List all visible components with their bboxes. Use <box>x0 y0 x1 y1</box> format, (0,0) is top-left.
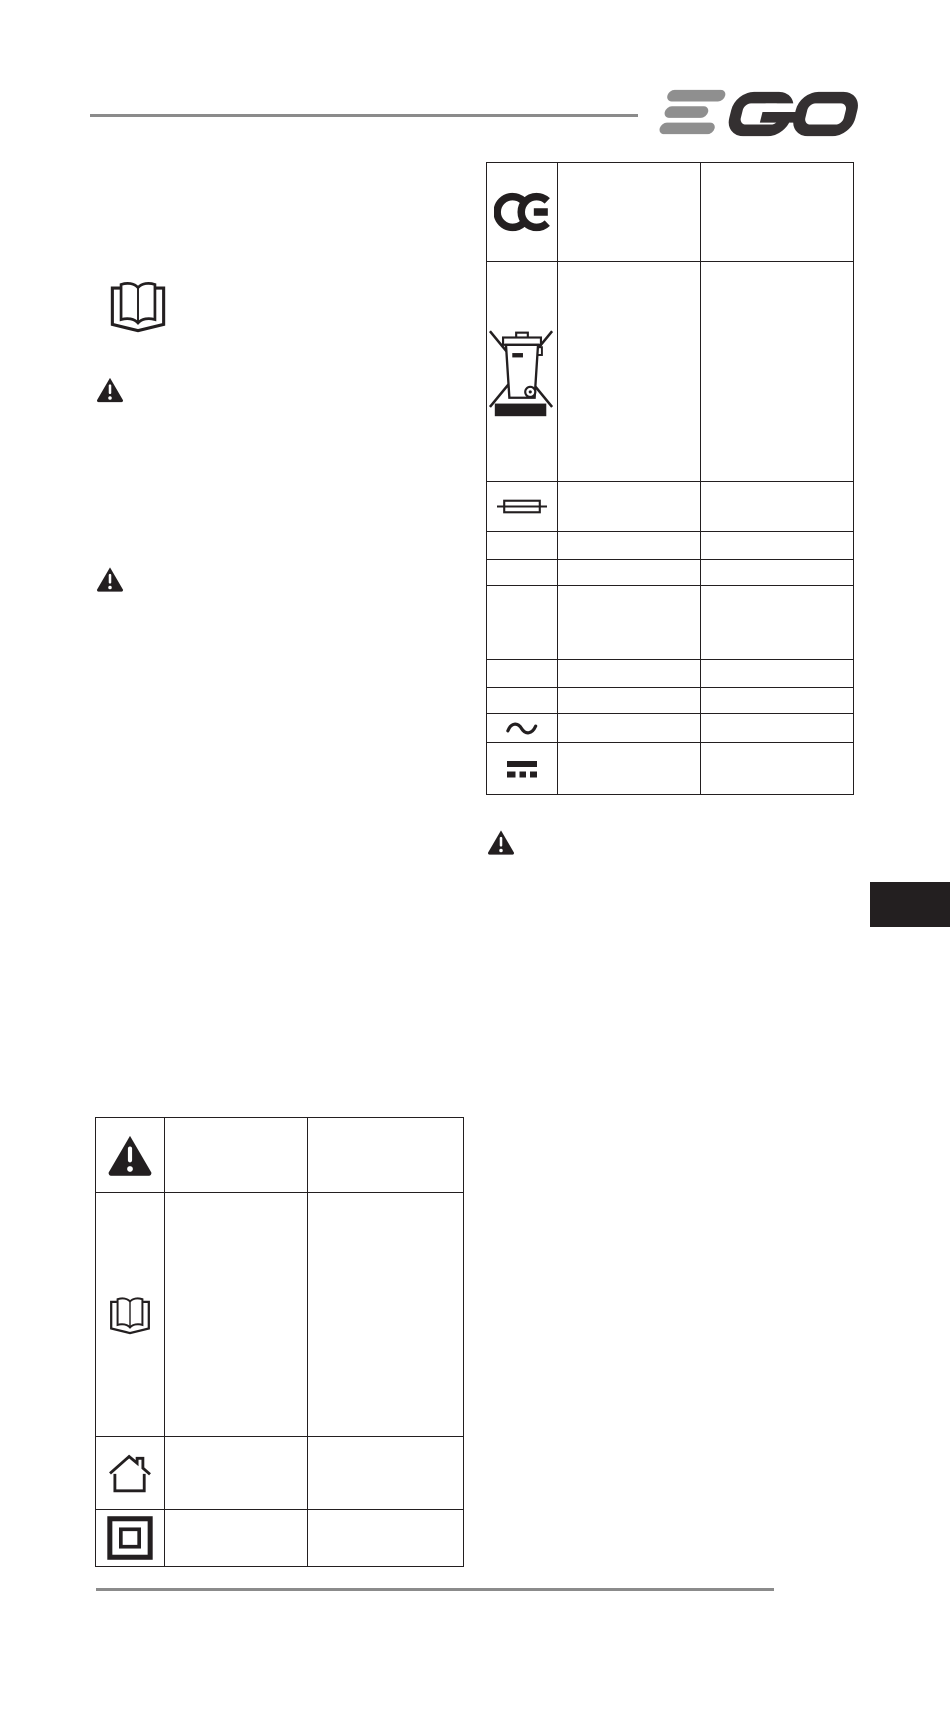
label-cell <box>558 743 701 795</box>
label-cell <box>558 262 701 482</box>
label-cell <box>558 560 701 586</box>
description-cell <box>701 660 854 688</box>
symbol-cell <box>96 1510 165 1567</box>
description-cell <box>701 482 854 532</box>
symbol-cell <box>487 560 558 586</box>
description-cell <box>308 1118 464 1193</box>
table-row <box>487 660 854 688</box>
table-row <box>96 1118 464 1193</box>
label-cell <box>558 660 701 688</box>
table-row <box>487 743 854 795</box>
page-edge-tab <box>870 882 950 927</box>
bottom-symbol-table <box>95 1117 464 1567</box>
top-divider <box>90 114 638 117</box>
warning-triangle-icon <box>96 376 124 403</box>
table-row <box>487 262 854 482</box>
label-cell <box>558 714 701 743</box>
warning-triangle-icon <box>487 828 515 856</box>
warning-triangle-icon <box>96 566 124 592</box>
description-cell <box>308 1510 464 1567</box>
symbol-cell <box>487 532 558 560</box>
alternating-current-icon <box>506 720 538 737</box>
description-cell <box>701 532 854 560</box>
description-cell <box>308 1193 464 1437</box>
table-row <box>487 688 854 714</box>
warning-triangle-icon <box>107 1134 153 1176</box>
ce-mark-icon <box>494 190 550 234</box>
description-cell <box>701 586 854 660</box>
manual-page: { "page": { "background": "#ffffff", "in… <box>0 0 950 1710</box>
label-cell <box>165 1193 308 1437</box>
table-row <box>487 586 854 660</box>
symbol-cell <box>487 262 558 482</box>
label-cell <box>165 1437 308 1510</box>
description-cell <box>701 262 854 482</box>
symbol-cell <box>487 586 558 660</box>
symbol-cell <box>96 1118 165 1193</box>
table-row <box>487 482 854 532</box>
class-ii-double-square-icon <box>107 1516 153 1560</box>
house-icon <box>107 1453 153 1493</box>
weee-crossed-bin-icon <box>488 327 556 417</box>
symbol-cell <box>96 1193 165 1437</box>
read-manual-book-icon <box>108 1292 152 1338</box>
label-cell <box>558 482 701 532</box>
ego-logo-e-bars <box>658 90 727 134</box>
right-symbol-table <box>486 162 854 795</box>
ego-logo-go <box>732 98 855 131</box>
symbol-cell <box>487 163 558 262</box>
description-cell <box>701 163 854 262</box>
label-cell <box>558 586 701 660</box>
symbol-cell <box>487 714 558 743</box>
symbol-cell <box>487 482 558 532</box>
table-row <box>96 1510 464 1567</box>
symbol-cell <box>487 660 558 688</box>
table-row <box>487 560 854 586</box>
open-book-icon <box>108 278 168 334</box>
direct-current-icon <box>505 759 539 778</box>
table-row <box>487 714 854 743</box>
ego-logo <box>654 87 870 139</box>
symbol-cell <box>487 688 558 714</box>
description-cell <box>701 560 854 586</box>
description-cell <box>701 743 854 795</box>
label-cell <box>558 688 701 714</box>
description-cell <box>308 1437 464 1510</box>
table-row <box>96 1193 464 1437</box>
table-row <box>96 1437 464 1510</box>
symbol-cell <box>487 743 558 795</box>
label-cell <box>165 1118 308 1193</box>
fuse-icon <box>497 499 547 514</box>
description-cell <box>701 714 854 743</box>
description-cell <box>701 688 854 714</box>
bottom-divider <box>96 1588 774 1591</box>
table-row <box>487 163 854 262</box>
label-cell <box>558 163 701 262</box>
label-cell <box>165 1510 308 1567</box>
label-cell <box>558 532 701 560</box>
table-row <box>487 532 854 560</box>
symbol-cell <box>96 1437 165 1510</box>
